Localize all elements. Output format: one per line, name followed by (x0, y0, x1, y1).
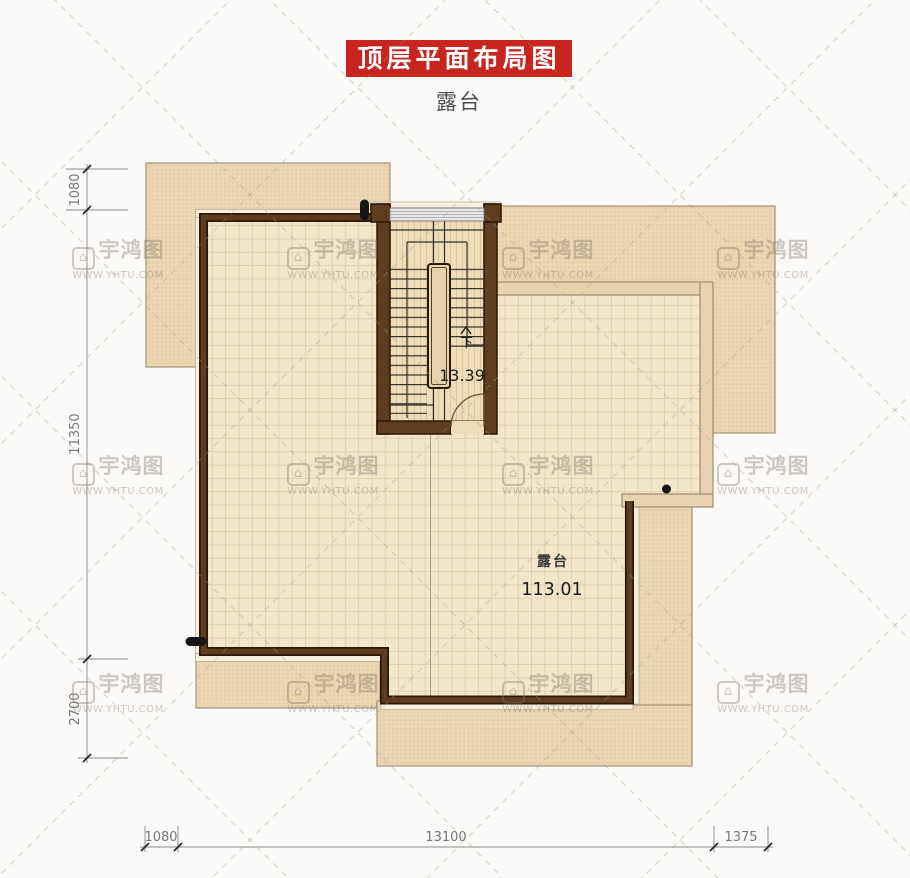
floor-plan: 下 13.39 露台 113.01 1080 11350 2700 (0, 0, 910, 878)
terrace-area-value: 113.01 (521, 580, 582, 600)
roof-bottom-center (377, 701, 692, 766)
dim-left-11350: 11350 (68, 413, 83, 454)
stair-window (390, 208, 484, 221)
dim-bottom-13100: 13100 (425, 830, 466, 845)
stairwell: 下 13.39 (371, 204, 501, 434)
dim-bottom-1080: 1080 (144, 830, 177, 845)
dim-left-2700: 2700 (68, 692, 83, 725)
roof-bottom-left (196, 658, 380, 708)
stairwell-area-value: 13.39 (439, 366, 485, 385)
vent-pipe-top (360, 200, 369, 221)
stair-down-label: 下 (460, 336, 473, 351)
dim-left-1080: 1080 (68, 173, 83, 206)
dimension-left (66, 164, 128, 763)
dim-bottom-1375: 1375 (724, 830, 757, 845)
drain-point (662, 485, 671, 494)
vent-pipe-left (186, 637, 207, 646)
terrace-label: 露台 (537, 553, 569, 570)
